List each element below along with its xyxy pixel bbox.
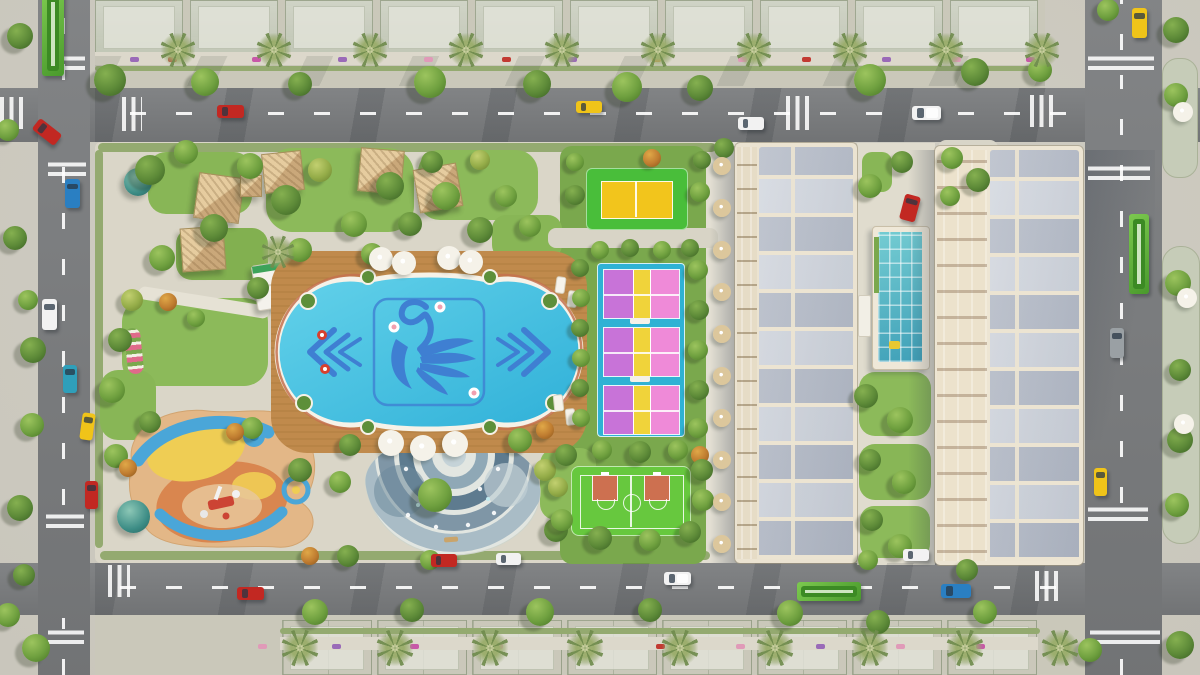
- tree: [99, 377, 125, 403]
- pool-kiosk: [858, 295, 871, 337]
- umbrella: [1174, 414, 1194, 434]
- tree: [551, 509, 573, 531]
- umbrella: [713, 325, 731, 343]
- windshield: [1134, 13, 1145, 19]
- palm-tree: [1024, 32, 1060, 68]
- palm-tree: [928, 32, 964, 68]
- red-car-bottom-road-1: [237, 587, 264, 600]
- tree: [572, 409, 590, 427]
- tree: [688, 418, 708, 438]
- center-circle: [623, 494, 641, 512]
- palm-tree: [566, 629, 604, 667]
- tree: [376, 172, 404, 200]
- tree: [548, 477, 568, 497]
- tree: [693, 151, 711, 169]
- cargo-roof: [677, 574, 688, 583]
- palm-tree: [471, 629, 509, 667]
- tree: [692, 489, 714, 511]
- windshield: [65, 369, 75, 375]
- crosswalk: [48, 160, 86, 176]
- tree: [891, 151, 913, 173]
- tree: [308, 158, 332, 182]
- tree: [18, 290, 38, 310]
- tree: [271, 185, 301, 215]
- backboard-right: [653, 472, 661, 475]
- tree: [20, 413, 44, 437]
- windshield: [501, 555, 507, 564]
- red-car-top-road: [217, 105, 244, 118]
- badminton-court: [586, 168, 688, 230]
- windshield: [917, 108, 923, 118]
- white-car-left-road: [42, 299, 57, 330]
- white-car-bottom-road-1: [496, 553, 521, 565]
- tree: [689, 300, 709, 320]
- bus-window-stripe: [1137, 224, 1140, 285]
- windshield: [222, 107, 228, 116]
- umbrella: [713, 451, 731, 469]
- crosswalk: [1035, 571, 1059, 601]
- roof-panels: [759, 147, 853, 559]
- windshield: [44, 304, 55, 310]
- parked-car: [424, 57, 433, 62]
- green-bus-left-road: [42, 0, 64, 76]
- tree: [432, 182, 460, 210]
- tree: [13, 564, 35, 586]
- umbrella: [713, 157, 731, 175]
- right-road-centerline-c: [1120, 648, 1123, 675]
- umbrella: [437, 246, 461, 270]
- aerial-site-plan-render: [0, 0, 1200, 675]
- tree: [892, 470, 916, 494]
- palm-tree: [946, 629, 984, 667]
- tree: [1078, 638, 1102, 662]
- tree: [679, 521, 701, 543]
- tree: [0, 603, 20, 627]
- tree: [1166, 631, 1194, 659]
- windshield: [67, 184, 78, 190]
- tree: [329, 471, 351, 493]
- palm-tree: [376, 629, 414, 667]
- parked-car: [332, 644, 341, 649]
- white-car-parked: [903, 549, 929, 561]
- tree: [566, 153, 584, 171]
- umbrella: [713, 493, 731, 511]
- tree: [174, 140, 198, 164]
- umbrella: [713, 241, 731, 259]
- tree: [571, 379, 589, 397]
- tree: [337, 545, 359, 567]
- tree: [854, 384, 878, 408]
- tree: [200, 214, 228, 242]
- tree: [571, 259, 589, 277]
- tree: [643, 149, 661, 167]
- cargo-roof: [926, 108, 938, 118]
- center-line: [604, 294, 679, 296]
- parked-car: [882, 57, 891, 62]
- palm-tree: [448, 32, 484, 68]
- poolside-lawn-strip: [874, 237, 879, 293]
- tree: [973, 600, 997, 624]
- tree: [536, 421, 554, 439]
- tree: [191, 68, 219, 96]
- tree: [688, 260, 708, 280]
- observation-dome-south: [117, 500, 150, 533]
- tree: [588, 526, 612, 550]
- badminton-court-surface: [601, 181, 673, 219]
- tree: [572, 349, 590, 367]
- tree: [858, 174, 882, 198]
- pickleball-court-2: [603, 327, 680, 377]
- yellow-taxi-top-road: [576, 101, 602, 113]
- windshield: [242, 589, 248, 598]
- tree: [690, 182, 710, 202]
- parked-car: [502, 57, 511, 62]
- windshield: [87, 485, 96, 491]
- tree: [135, 155, 165, 185]
- west-facade-strip: [737, 147, 757, 559]
- parked-car: [130, 57, 139, 62]
- tree: [398, 212, 422, 236]
- palm-tree: [160, 32, 196, 68]
- tree: [681, 239, 699, 257]
- tree: [612, 72, 642, 102]
- court-bench: [630, 318, 650, 324]
- crosswalk: [786, 96, 810, 130]
- tree: [301, 547, 319, 565]
- crosswalk: [48, 628, 84, 644]
- tree: [555, 444, 577, 466]
- tree: [159, 293, 177, 311]
- umbrella: [713, 367, 731, 385]
- tree: [1097, 0, 1119, 21]
- pickleball-court-3: [603, 385, 680, 435]
- umbrella: [713, 409, 731, 427]
- tree: [854, 64, 886, 96]
- tree: [687, 75, 713, 101]
- tree: [470, 150, 490, 170]
- tree: [691, 459, 713, 481]
- tree: [961, 58, 989, 86]
- crosswalk: [108, 565, 130, 597]
- tree: [688, 340, 708, 360]
- umbrella: [459, 250, 483, 274]
- tree: [565, 185, 585, 205]
- umbrella: [378, 430, 404, 456]
- tree: [940, 186, 960, 206]
- blue-car-left-road: [65, 179, 80, 208]
- tree: [247, 277, 269, 299]
- windshield: [581, 103, 587, 112]
- tree: [653, 241, 671, 259]
- east-facade-strip: [937, 150, 987, 561]
- tree: [966, 168, 990, 192]
- tree: [288, 458, 312, 482]
- pickleball-court-1: [603, 269, 680, 319]
- shophouse-block-east: [935, 146, 1083, 565]
- tree: [121, 289, 143, 311]
- palm-tree: [352, 32, 388, 68]
- palm-tree: [1041, 629, 1079, 667]
- crosswalk: [1088, 162, 1150, 180]
- green-bus-right-road: [1129, 214, 1149, 294]
- parked-car: [896, 644, 905, 649]
- windshield: [37, 123, 48, 135]
- tree: [572, 289, 590, 307]
- tree: [20, 337, 46, 363]
- key-right: [644, 475, 670, 501]
- tree: [859, 449, 881, 471]
- yellow-lounger: [889, 341, 900, 349]
- tree: [467, 217, 493, 243]
- tree: [668, 440, 688, 460]
- crosswalk: [1090, 628, 1160, 644]
- backboard-left: [601, 472, 609, 475]
- tree: [149, 245, 175, 271]
- blue-car-bottom-road: [941, 584, 971, 598]
- windshield: [83, 417, 93, 424]
- umbrella: [392, 251, 416, 275]
- tree: [187, 309, 205, 327]
- bus-window-stripe: [805, 590, 854, 593]
- white-car-top-road: [738, 117, 764, 130]
- crosswalk: [122, 97, 142, 131]
- tree: [226, 423, 244, 441]
- tree: [523, 70, 551, 98]
- left-road-centerline-c: [62, 618, 65, 675]
- parked-car: [802, 57, 811, 62]
- tree: [861, 509, 883, 531]
- bus-window-stripe: [51, 2, 55, 66]
- yellow-car-left-road: [79, 412, 96, 441]
- tree: [414, 66, 446, 98]
- tree: [956, 559, 978, 581]
- white-pickup-bottom-road: [664, 572, 691, 585]
- roof-panels: [990, 150, 1079, 561]
- tree: [526, 598, 554, 626]
- parked-car: [816, 644, 825, 649]
- gray-car-right-road: [1110, 328, 1124, 358]
- parked-car: [258, 644, 267, 649]
- umbrella: [713, 199, 731, 217]
- tree: [22, 634, 50, 662]
- tree: [592, 440, 612, 460]
- white-van-top-road: [912, 106, 941, 120]
- palm-tree: [832, 32, 868, 68]
- palm-tree: [544, 32, 580, 68]
- parked-car: [338, 57, 347, 62]
- tree: [3, 226, 27, 250]
- right-road-centerline-b: [1120, 75, 1123, 503]
- red-car-left-road: [85, 481, 98, 509]
- tree: [237, 153, 263, 179]
- palm-tree: [640, 32, 676, 68]
- shophouse-block-west: [735, 143, 857, 563]
- tree: [689, 380, 709, 400]
- tree: [418, 478, 452, 512]
- tree: [139, 411, 161, 433]
- pickleball-courts: [597, 263, 685, 437]
- tree: [508, 428, 532, 452]
- umbrella: [369, 247, 393, 271]
- roof-vertical-rib: [791, 147, 795, 559]
- tree: [887, 407, 913, 433]
- basketball-3x3-court: [571, 466, 691, 536]
- tree: [119, 459, 137, 477]
- tree: [7, 23, 33, 49]
- windshield: [1096, 472, 1105, 478]
- roof-vertical-rib: [1015, 150, 1019, 561]
- umbrella: [1177, 288, 1197, 308]
- tree: [94, 64, 126, 96]
- tree: [421, 151, 443, 173]
- palm-tree: [756, 629, 794, 667]
- tree: [1169, 359, 1191, 381]
- windshield: [669, 574, 675, 583]
- tree: [339, 434, 361, 456]
- crosswalk: [1088, 52, 1154, 70]
- tree: [1165, 493, 1189, 517]
- crosswalk: [1030, 95, 1055, 127]
- umbrella: [1173, 102, 1193, 122]
- tree: [108, 328, 132, 352]
- yellow-taxi-right-road: [1094, 468, 1107, 496]
- tree: [777, 600, 803, 626]
- parked-car: [736, 644, 745, 649]
- court-bench: [630, 376, 650, 382]
- tree: [400, 598, 424, 622]
- umbrella: [713, 535, 731, 553]
- tree: [341, 211, 367, 237]
- palm-tree: [256, 32, 292, 68]
- tree: [519, 215, 541, 237]
- yellow-taxi-ne: [1132, 8, 1147, 38]
- tree: [639, 529, 661, 551]
- tree: [714, 138, 734, 158]
- tree: [858, 550, 878, 570]
- windshield: [946, 586, 953, 596]
- umbrella: [713, 283, 731, 301]
- tree: [571, 319, 589, 337]
- windshield: [436, 556, 442, 565]
- tree: [7, 495, 33, 521]
- palm-tree: [851, 629, 889, 667]
- crosswalk: [46, 512, 84, 528]
- umbrella: [410, 435, 436, 461]
- tree: [241, 417, 263, 439]
- umbrella: [442, 431, 468, 457]
- center-line: [604, 410, 679, 412]
- key-left: [592, 475, 618, 501]
- tree: [591, 241, 609, 259]
- tree: [1163, 17, 1189, 43]
- windshield: [908, 551, 914, 560]
- palm-tree: [736, 32, 772, 68]
- teal-car-left-road: [63, 365, 77, 393]
- windshield: [905, 198, 917, 206]
- tree: [941, 147, 963, 169]
- palm-tree: [661, 629, 699, 667]
- tree: [621, 239, 639, 257]
- tree: [288, 72, 312, 96]
- palm-tree: [281, 629, 319, 667]
- tree: [629, 441, 651, 463]
- tree: [638, 598, 662, 622]
- green-bus-bottom-road: [797, 582, 861, 601]
- badminton-net-line: [635, 181, 637, 217]
- red-car-bottom-road-2: [431, 554, 457, 567]
- windshield: [743, 119, 749, 128]
- tree: [495, 185, 517, 207]
- palm-tree: [261, 235, 295, 269]
- windshield: [1112, 333, 1122, 339]
- tree: [302, 599, 328, 625]
- right-road-centerline-a: [1120, 0, 1123, 50]
- crosswalk: [1088, 506, 1148, 521]
- center-line: [604, 352, 679, 354]
